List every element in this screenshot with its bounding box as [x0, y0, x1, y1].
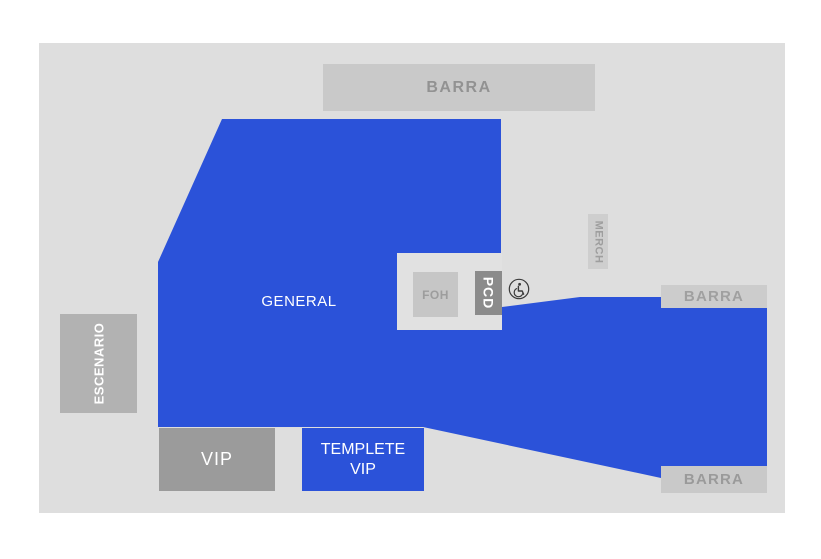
zone-vip-label: VIP — [201, 449, 233, 470]
zone-escenario-stage: ESCENARIO — [60, 314, 137, 413]
zone-barra-right: BARRA — [661, 285, 767, 308]
zone-vip[interactable]: VIP — [159, 428, 275, 491]
zone-foh-booth: FOH — [413, 272, 458, 317]
zone-foh-label: FOH — [422, 288, 449, 302]
venue-floor: GENERAL BARRA ESCENARIO FOH PCD — [39, 43, 785, 513]
zone-pcd[interactable]: PCD — [475, 271, 502, 315]
venue-seating-map: GENERAL BARRA ESCENARIO FOH PCD — [0, 0, 821, 559]
zone-barra-top: BARRA — [323, 64, 595, 111]
zone-merch: MERCH — [588, 214, 608, 269]
zone-escenario-label: ESCENARIO — [91, 323, 106, 405]
zone-templete-vip-label: TEMPLETE VIP — [313, 440, 413, 480]
zone-barra-bottom-right-label: BARRA — [684, 471, 744, 488]
zone-barra-top-label: BARRA — [426, 79, 491, 97]
zone-barra-right-label: BARRA — [684, 288, 744, 305]
wheelchair-icon — [508, 278, 530, 300]
zone-barra-bottom-right: BARRA — [661, 466, 767, 493]
zone-merch-label: MERCH — [592, 220, 604, 263]
zone-pcd-label: PCD — [481, 277, 497, 310]
zone-templete-vip[interactable]: TEMPLETE VIP — [302, 428, 424, 491]
zone-general-label: GENERAL — [219, 291, 379, 311]
